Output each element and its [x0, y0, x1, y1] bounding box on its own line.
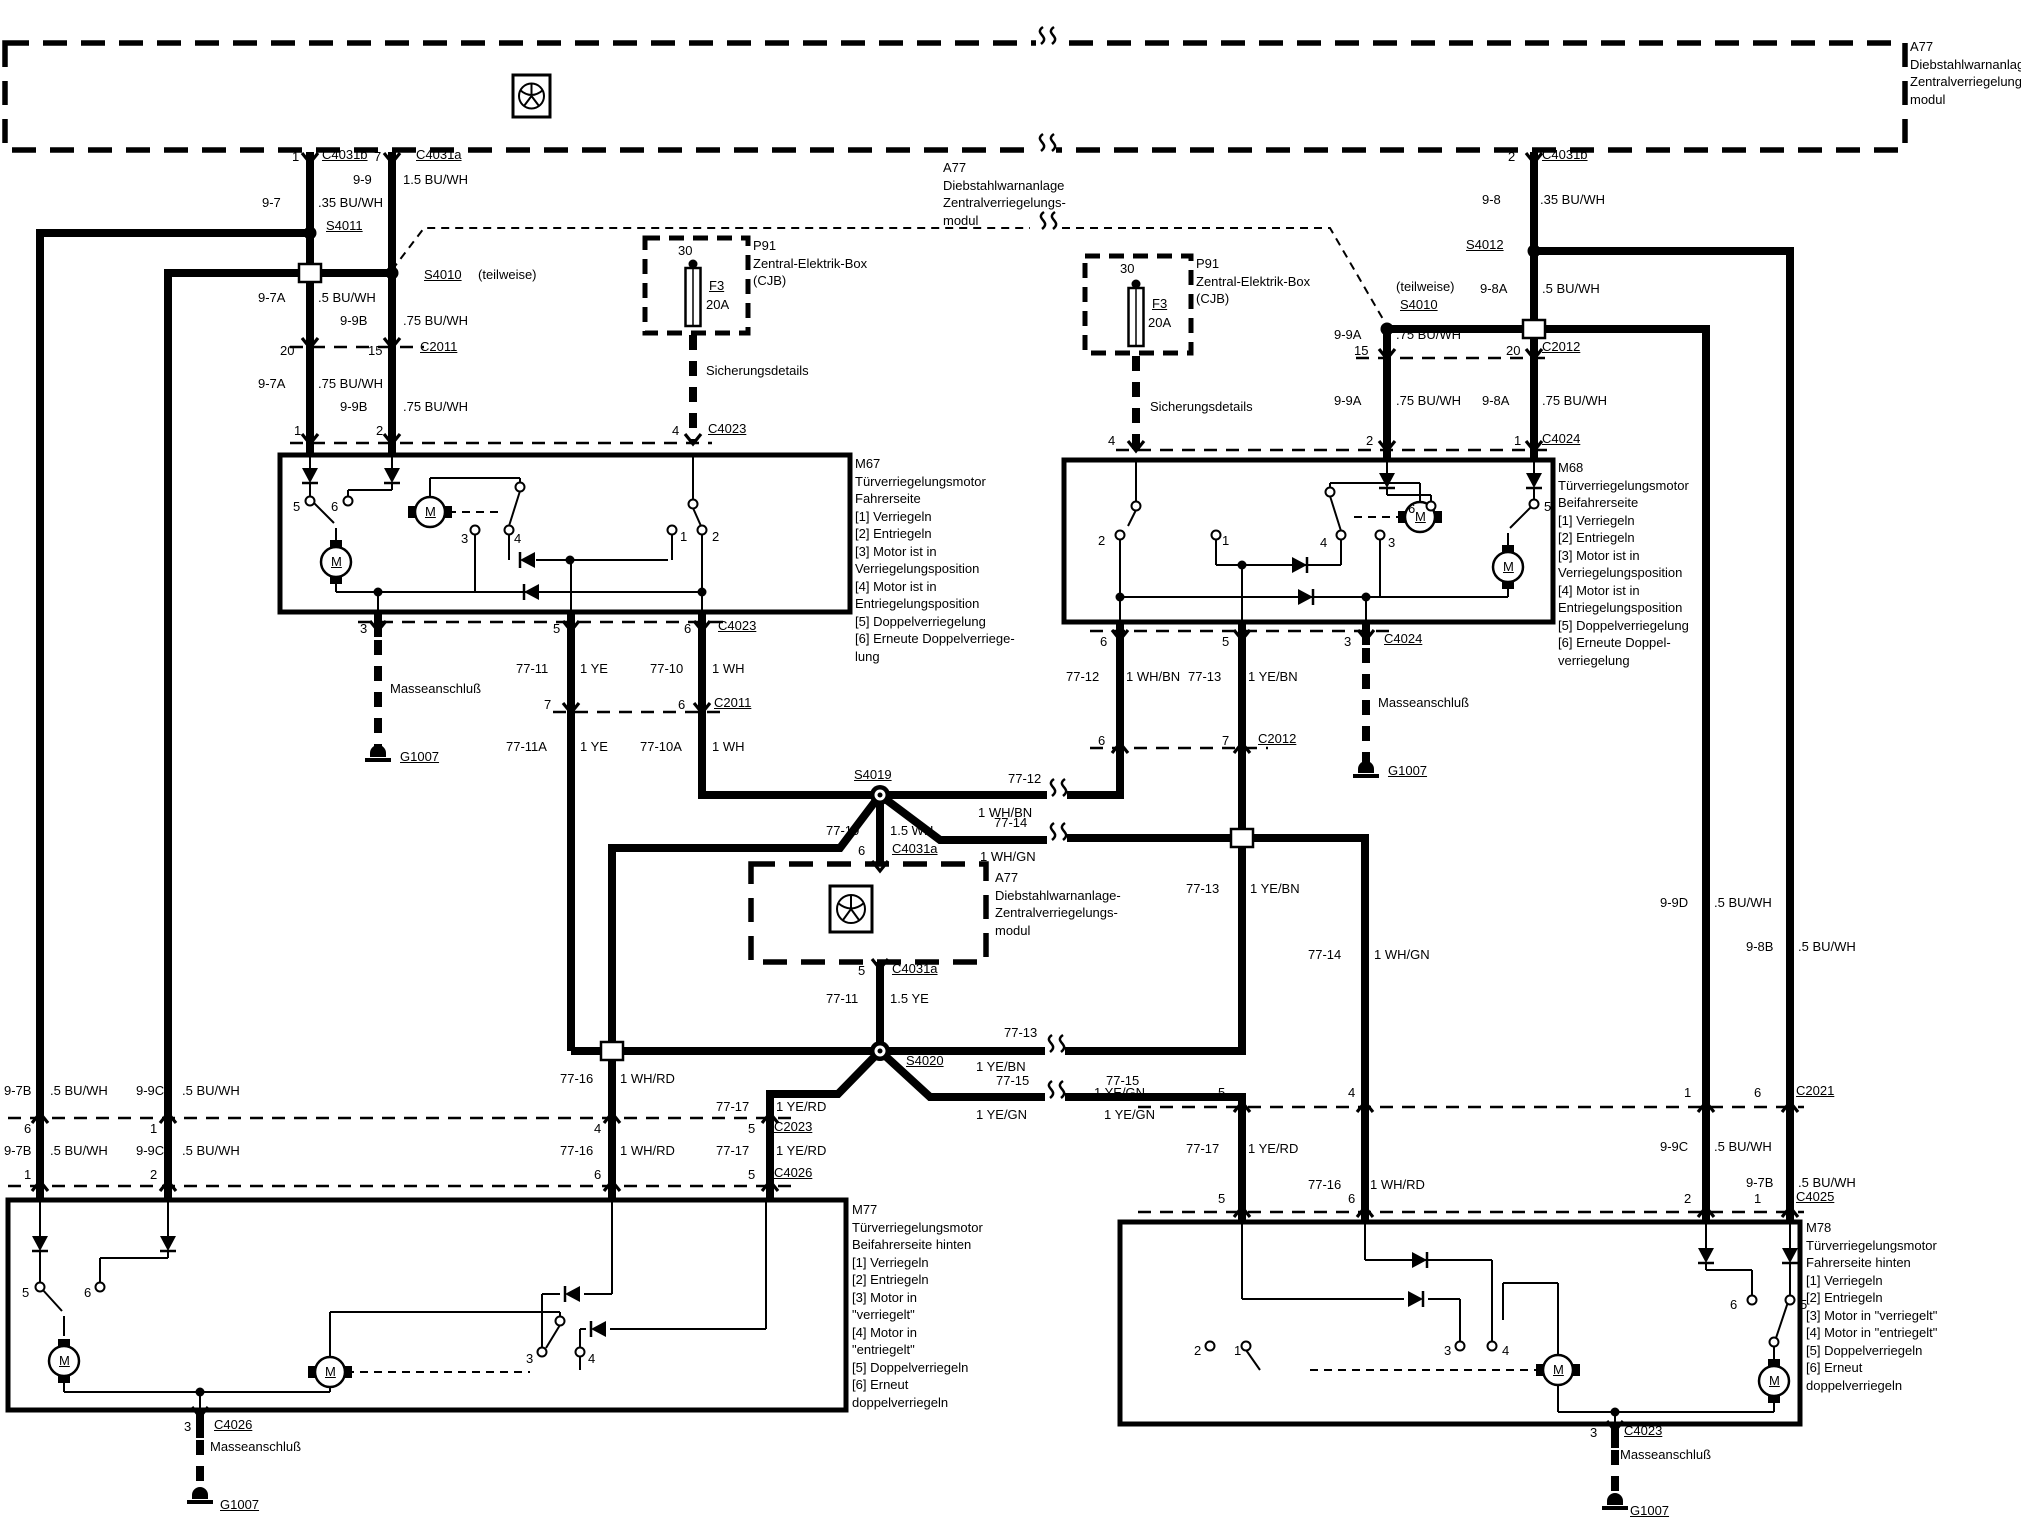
module-m68-text: M68 Türverriegelungsmotor Beifahrerseite…: [1558, 459, 1689, 669]
motor-letter: M: [331, 554, 342, 570]
pin: 20: [280, 343, 294, 359]
pin: 1: [294, 423, 301, 439]
note: (teilweise): [478, 267, 537, 283]
wire-spec: .5 BU/WH: [50, 1083, 108, 1099]
pin: 6: [684, 621, 691, 637]
pin: 1: [1514, 433, 1521, 449]
circuit: 9-9B: [340, 313, 367, 329]
wire-spec: 1 WH/GN: [980, 849, 1036, 865]
crossover: [299, 264, 321, 282]
fuse-rating: 20A: [1148, 315, 1171, 331]
circuit: 77-12: [1008, 771, 1041, 787]
pin: 3: [1344, 634, 1351, 650]
contact: 5: [1800, 1297, 1807, 1313]
contact: 1: [680, 529, 687, 545]
pin: 5: [553, 621, 560, 637]
wire-spec: 1 WH/RD: [1370, 1177, 1425, 1193]
pin: 1: [150, 1121, 157, 1137]
contact: 3: [1444, 1343, 1451, 1359]
fuse-f3-left: [686, 260, 701, 327]
splice: S4020: [906, 1053, 944, 1069]
pin: 5: [748, 1121, 755, 1137]
connector: C4025: [1796, 1189, 1834, 1205]
circuit: 77-11: [826, 991, 858, 1007]
wire-spec: 1 YE/GN: [1094, 1085, 1145, 1101]
motor-letter: M: [1415, 509, 1426, 525]
pin: 3: [184, 1419, 191, 1435]
wire-spec: 1 YE: [580, 661, 608, 677]
pin: 1: [292, 149, 299, 165]
wire-spec: 1 WH/RD: [620, 1071, 675, 1087]
wire-spec: 1 WH: [712, 661, 745, 677]
module-m78-text: M78 Türverriegelungsmotor Fahrerseite hi…: [1806, 1219, 1937, 1394]
contact: 4: [514, 531, 521, 547]
pin: 6: [1754, 1085, 1761, 1101]
circuit: 9-7A: [258, 290, 285, 306]
wire-spec: 1 WH/RD: [620, 1143, 675, 1159]
circuit: 9-7B: [1746, 1175, 1773, 1191]
connector: C4031a: [892, 841, 938, 857]
wire-spec: .35 BU/WH: [318, 195, 383, 211]
connector: C4023: [708, 421, 746, 437]
ground: G1007: [400, 749, 439, 765]
wire-spec: 1.5 WH: [890, 823, 933, 839]
wire-spec: .5 BU/WH: [1714, 895, 1772, 911]
break-mark: [1045, 1080, 1065, 1114]
note: Masseanschluß: [1620, 1447, 1711, 1463]
contact: 6: [1730, 1297, 1737, 1313]
wire-spec: 1 YE/RD: [776, 1099, 826, 1115]
contact: 2: [1194, 1343, 1201, 1359]
connector: C2012: [1258, 731, 1296, 747]
note: Masseanschluß: [210, 1439, 301, 1455]
contact: 2: [1098, 533, 1105, 549]
pin: 2: [1508, 149, 1515, 165]
pin: 4: [1108, 433, 1115, 449]
wire-spec: .75 BU/WH: [318, 376, 383, 392]
pin: 1: [1754, 1191, 1761, 1207]
pin: 6: [678, 697, 685, 713]
module-m67-box: [280, 455, 850, 612]
splice-s4011: [304, 227, 317, 240]
circuit: 77-11: [516, 661, 548, 677]
contact: 3: [1388, 535, 1395, 551]
break-mark: [1036, 26, 1056, 60]
note: Sicherungsdetails: [1150, 399, 1253, 415]
circuit: 77-13: [1004, 1025, 1037, 1041]
circuit: 77-14: [994, 815, 1027, 831]
wire-spec: .5 BU/WH: [318, 290, 376, 306]
module-m67-text: M67 Türverriegelungsmotor Fahrerseite [1…: [855, 455, 1015, 665]
module-a77-top-box: [5, 43, 1905, 150]
contact: 4: [1502, 1343, 1509, 1359]
splice-s4019: [870, 785, 890, 805]
ground-g1007: [1602, 1493, 1628, 1508]
ground: G1007: [1388, 763, 1427, 779]
connector: C4023: [1624, 1423, 1662, 1439]
pin: 1: [1684, 1085, 1691, 1101]
ground-g1007: [365, 745, 391, 760]
module-m77-text: M77 Türverriegelungsmotor Beifahrerseite…: [852, 1201, 983, 1411]
circuit: 77-11A: [506, 739, 547, 755]
circuit: 9-7: [262, 195, 281, 211]
connector: C2011: [714, 695, 751, 711]
wire-spec: .75 BU/WH: [1396, 393, 1461, 409]
circuit: 77-17: [1186, 1141, 1219, 1157]
pin: 4: [594, 1121, 601, 1137]
circuit: 9-8A: [1482, 393, 1509, 409]
circuit: 77-10: [826, 823, 859, 839]
fusebox-p91-left-text: P91 Zentral-Elektrik-Box (CJB): [753, 237, 867, 290]
pin: 4: [672, 423, 679, 439]
note: Masseanschluß: [1378, 695, 1469, 711]
contact: 3: [526, 1351, 533, 1367]
wiring-diagram-page: A77 Diebstahlwarnanlage-/- Zentralverrie…: [0, 0, 2021, 1533]
pin: 5: [858, 963, 865, 979]
circuit: 9-9B: [340, 399, 367, 415]
module-a77-mid-box: [751, 864, 986, 962]
pin: 7: [1222, 733, 1229, 749]
pin: 6: [1098, 733, 1105, 749]
contact: 2: [712, 529, 719, 545]
wire-spec: 1.5 BU/WH: [403, 172, 468, 188]
fuse-id: F3: [1152, 296, 1167, 312]
break-mark: [1047, 822, 1067, 856]
circuit: 77-16: [560, 1071, 593, 1087]
note: Masseanschluß: [390, 681, 481, 697]
circuit: 77-12: [1066, 669, 1099, 685]
break-mark: [1047, 778, 1067, 812]
circuit: 9-8A: [1480, 281, 1507, 297]
m67-interior: [302, 455, 707, 612]
connector: C2023: [774, 1119, 812, 1135]
connector: C2011: [420, 339, 457, 355]
pin: 2: [1366, 433, 1373, 449]
m78-interior: [1206, 1222, 1799, 1424]
wire-spec: .75 BU/WH: [403, 313, 468, 329]
module-a77-mid-top-text: A77 Diebstahlwarnanlage Zentralverriegel…: [943, 159, 1066, 229]
pin: 6: [1100, 634, 1107, 650]
pin: 1: [24, 1167, 31, 1183]
connector: C4023: [718, 618, 756, 634]
pin: 6: [594, 1167, 601, 1183]
wire-spec: 1 WH/GN: [1374, 947, 1430, 963]
break-mark: [1045, 1034, 1065, 1068]
wire-spec: 1 YE/GN: [976, 1107, 1027, 1123]
connector: C2012: [1542, 339, 1580, 355]
pin: 7: [374, 149, 381, 165]
wire-spec: 1 WH: [712, 739, 745, 755]
contact: 6: [331, 499, 338, 515]
wire-spec: 1 WH/BN: [1126, 669, 1180, 685]
fuse-terminal: 30: [1120, 261, 1134, 277]
circuit: 9-7B: [4, 1083, 31, 1099]
circuit: 9-8B: [1746, 939, 1773, 955]
pin: 2: [376, 423, 383, 439]
circuit: 77-16: [560, 1143, 593, 1159]
crossover: [1231, 829, 1253, 847]
circuit: 77-17: [716, 1143, 749, 1159]
wire-spec: 1 YE/BN: [1248, 669, 1298, 685]
wire-spec: .75 BU/WH: [403, 399, 468, 415]
circuit: 77-17: [716, 1099, 749, 1115]
circuit: 9-8: [1482, 192, 1501, 208]
circuit: 9-9: [353, 172, 372, 188]
splice-s4020: [870, 1041, 890, 1061]
connector: C4031a: [416, 147, 462, 163]
splice: S4011: [326, 218, 363, 234]
splice-s4010-left: [386, 267, 399, 280]
circuit: 9-9A: [1334, 393, 1361, 409]
pin: 6: [858, 843, 865, 859]
module-a77-mid-text: A77 Diebstahlwarnanlage- Zentralverriege…: [995, 869, 1121, 939]
module-a77-top-text: A77 Diebstahlwarnanlage-/- Zentralverrie…: [1910, 38, 2021, 108]
contact: 3: [461, 531, 468, 547]
splice: S4019: [854, 767, 892, 783]
wiring-diagram-canvas: [0, 0, 2021, 1533]
fusebox-p91-right-text: P91 Zentral-Elektrik-Box (CJB): [1196, 255, 1310, 308]
contact: 6: [84, 1285, 91, 1301]
contact: 1: [1222, 533, 1229, 549]
fuse-rating: 20A: [706, 297, 729, 313]
circuit: 9-9D: [1660, 895, 1688, 911]
pin: 6: [1348, 1191, 1355, 1207]
pin: 6: [24, 1121, 31, 1137]
m77-interior: [32, 1200, 766, 1410]
wire-spec: 1 YE/RD: [776, 1143, 826, 1159]
wire-spec: .5 BU/WH: [1714, 1139, 1772, 1155]
contact: 4: [588, 1351, 595, 1367]
circuit: 9-7A: [258, 376, 285, 392]
motor-letter: M: [1503, 559, 1514, 575]
pin: 15: [368, 343, 382, 359]
ground: G1007: [1630, 1503, 1669, 1519]
wire-spec: 1.5 YE: [890, 991, 929, 1007]
splice: S4012: [1466, 237, 1504, 253]
contact: 4: [1320, 535, 1327, 551]
contact: 1: [1234, 1343, 1241, 1359]
pin: 15: [1354, 343, 1368, 359]
wire-spec: .5 BU/WH: [182, 1143, 240, 1159]
circuit: 77-10: [650, 661, 683, 677]
pin: 5: [748, 1167, 755, 1183]
circuit: 9-9A: [1334, 327, 1361, 343]
motor-letter: M: [1553, 1362, 1564, 1378]
module-m77-box: [8, 1200, 846, 1410]
ground: G1007: [220, 1497, 259, 1513]
motor-letter: M: [425, 504, 436, 520]
fuse-terminal: 30: [678, 243, 692, 259]
circuit: 9-9C: [1660, 1139, 1688, 1155]
crossover: [1523, 320, 1545, 338]
wire-spec: .75 BU/WH: [1396, 327, 1461, 343]
splice: S4010: [1400, 297, 1438, 313]
pin: 2: [1684, 1191, 1691, 1207]
contact: 5: [22, 1285, 29, 1301]
m68-interior: [1116, 460, 1543, 622]
circuit: 77-15: [996, 1073, 1029, 1089]
motor-letter: M: [59, 1353, 70, 1369]
ford-logo-icon: [830, 886, 872, 932]
circuit: 77-13: [1188, 669, 1221, 685]
ground-g1007: [1353, 761, 1379, 776]
wire-spec: .5 BU/WH: [182, 1083, 240, 1099]
pin: 5: [1218, 1191, 1225, 1207]
wire-spec: 1 YE/RD: [1248, 1141, 1298, 1157]
connector: C4026: [214, 1417, 252, 1433]
splice: S4010: [424, 267, 462, 283]
motor-letter: M: [325, 1364, 336, 1380]
circuit: 77-14: [1308, 947, 1341, 963]
wire-spec: .5 BU/WH: [1798, 939, 1856, 955]
circuit: 9-7B: [4, 1143, 31, 1159]
note: Sicherungsdetails: [706, 363, 809, 379]
wire-spec: 1 YE: [580, 739, 608, 755]
pin: 2: [150, 1167, 157, 1183]
ford-logo-icon: [513, 75, 550, 117]
pin: 7: [544, 697, 551, 713]
note: (teilweise): [1396, 279, 1455, 295]
pin: 4: [1348, 1085, 1355, 1101]
connector: C4026: [774, 1165, 812, 1181]
circuit: 77-13: [1186, 881, 1219, 897]
wire-spec: .5 BU/WH: [50, 1143, 108, 1159]
connector: C4031a: [892, 961, 938, 977]
connector: C4024: [1384, 631, 1422, 647]
pin: 5: [1222, 634, 1229, 650]
splice-s4012: [1528, 245, 1541, 258]
motor-letter: M: [1769, 1373, 1780, 1389]
wire-spec: 1 YE/GN: [1104, 1107, 1155, 1123]
wire-spec: .35 BU/WH: [1540, 192, 1605, 208]
connector: C4031b: [1542, 147, 1588, 163]
fuse-id: F3: [709, 278, 724, 294]
pin: 3: [360, 621, 367, 637]
pin: 20: [1506, 343, 1520, 359]
connector: C2021: [1796, 1083, 1834, 1099]
pin: 3: [1590, 1425, 1597, 1441]
wire-spec: .5 BU/WH: [1542, 281, 1600, 297]
circuit: 9-9C: [136, 1083, 164, 1099]
circuit: 77-10A: [640, 739, 682, 755]
contact: 5: [293, 499, 300, 515]
ground-g1007: [187, 1487, 213, 1502]
splice-s4010-right: [1381, 323, 1394, 336]
pin: 5: [1218, 1085, 1225, 1101]
circuit: 77-16: [1308, 1177, 1341, 1193]
crossover: [601, 1042, 623, 1060]
fuse-f3-right: [1129, 280, 1144, 347]
contact: 5: [1544, 499, 1551, 515]
wire-spec: .75 BU/WH: [1542, 393, 1607, 409]
connector: C4031b: [322, 147, 368, 163]
connector: C4024: [1542, 431, 1580, 447]
wire-spec: 1 YE/BN: [1250, 881, 1300, 897]
circuit: 9-9C: [136, 1143, 164, 1159]
